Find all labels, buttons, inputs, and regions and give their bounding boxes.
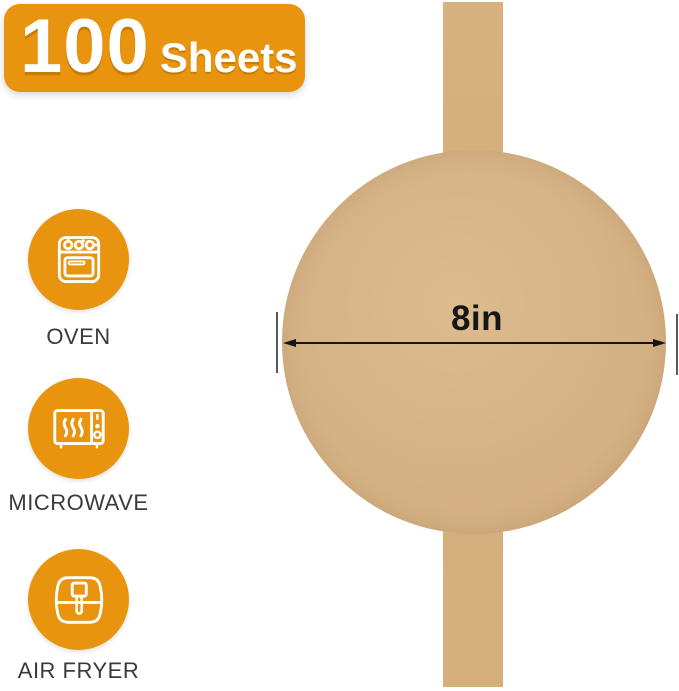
- feature-label-oven: OVEN: [46, 324, 110, 350]
- diameter-dimension-line: [293, 342, 659, 344]
- feature-microwave: MICROWAVE: [6, 378, 151, 516]
- product-image-canvas: 8in 100 Sheets OVEN: [0, 0, 679, 691]
- sheet-count-badge: 100 Sheets: [4, 4, 305, 92]
- arrowhead-left-icon: [283, 339, 296, 347]
- feature-label-microwave: MICROWAVE: [8, 490, 148, 516]
- feature-label-air-fryer: AIR FRYER: [18, 658, 139, 684]
- extension-line-left: [276, 312, 278, 373]
- feature-air-fryer: AIR FRYER: [6, 549, 151, 684]
- microwave-icon: [28, 378, 129, 479]
- feature-oven: OVEN: [6, 209, 151, 350]
- sheet-count-unit: Sheets: [160, 34, 298, 82]
- diameter-label: 8in: [437, 299, 517, 339]
- air-fryer-icon: [28, 549, 129, 650]
- oven-icon: [28, 209, 129, 310]
- extension-line-right: [676, 314, 678, 375]
- arrowhead-right-icon: [653, 339, 666, 347]
- sheet-count-number: 100: [20, 4, 150, 90]
